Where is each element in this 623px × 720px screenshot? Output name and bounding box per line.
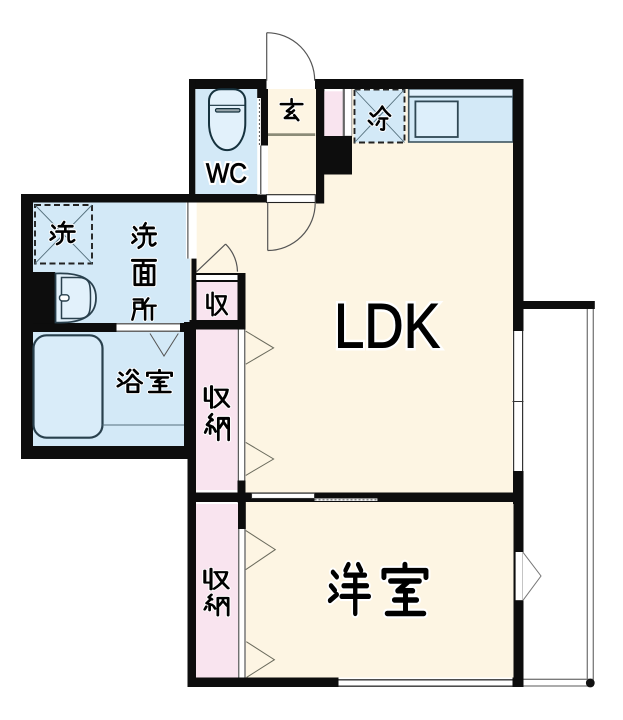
svg-text:LDK: LDK [334, 292, 440, 362]
svg-text:WC: WC [206, 158, 247, 189]
